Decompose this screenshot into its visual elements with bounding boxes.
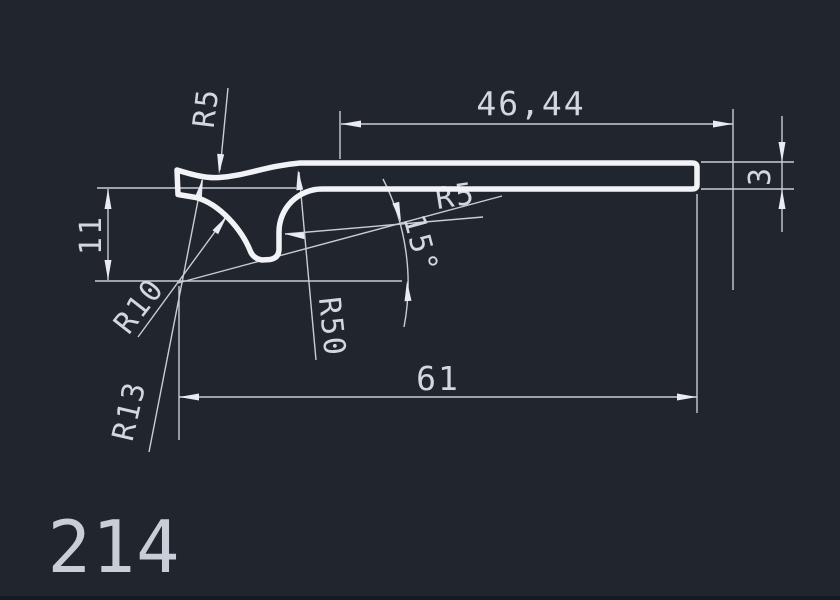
canvas-bottom-edge [0,596,840,600]
arrowhead-r10 [213,216,228,234]
dim-text-3: 3 [743,166,778,186]
cad-drawing-svg: 11 46,44 3 61 R5 [0,0,840,600]
leader-r5-top[interactable]: R5 [187,86,228,174]
arrowhead-r5-top [217,154,224,174]
arrowhead-11-up [105,189,112,209]
leader-line-r50 [299,172,316,360]
dim-text-r10: R10 [107,272,172,341]
part-number-label: 214 [47,505,180,589]
arrowhead-3-up [779,189,786,209]
dim-text-r13: R13 [106,378,154,445]
leader-line-r5-inner [285,217,483,234]
dim-text-r5-top: R5 [187,86,227,130]
leader-r5-inner[interactable]: R5 [285,176,483,239]
arrowhead-61-right [677,394,697,401]
dimension-3[interactable]: 3 [743,116,786,232]
arrowhead-11-down [105,260,112,280]
arrowhead-61-left [179,394,199,401]
arrowhead-3-down [779,142,786,162]
cad-drawing-canvas[interactable]: 11 46,44 3 61 R5 [0,0,840,600]
arrowhead-4644-left [341,121,361,128]
leader-line-r13 [149,180,202,452]
angle-ray-15 [178,196,502,283]
dim-text-4644: 46,44 [476,84,585,123]
dimension-61[interactable]: 61 [179,359,697,401]
dim-text-r5-inner: R5 [433,176,478,217]
arrowhead-4644-right [713,121,733,128]
dim-text-r50: R50 [311,295,352,359]
dim-text-61: 61 [416,359,460,398]
dimension-11[interactable]: 11 [74,189,112,280]
leader-r10[interactable]: R10 [107,216,227,341]
dim-text-11: 11 [74,215,109,255]
leader-r50[interactable]: R50 [296,170,352,360]
dimension-46-44[interactable]: 46,44 [341,84,733,128]
